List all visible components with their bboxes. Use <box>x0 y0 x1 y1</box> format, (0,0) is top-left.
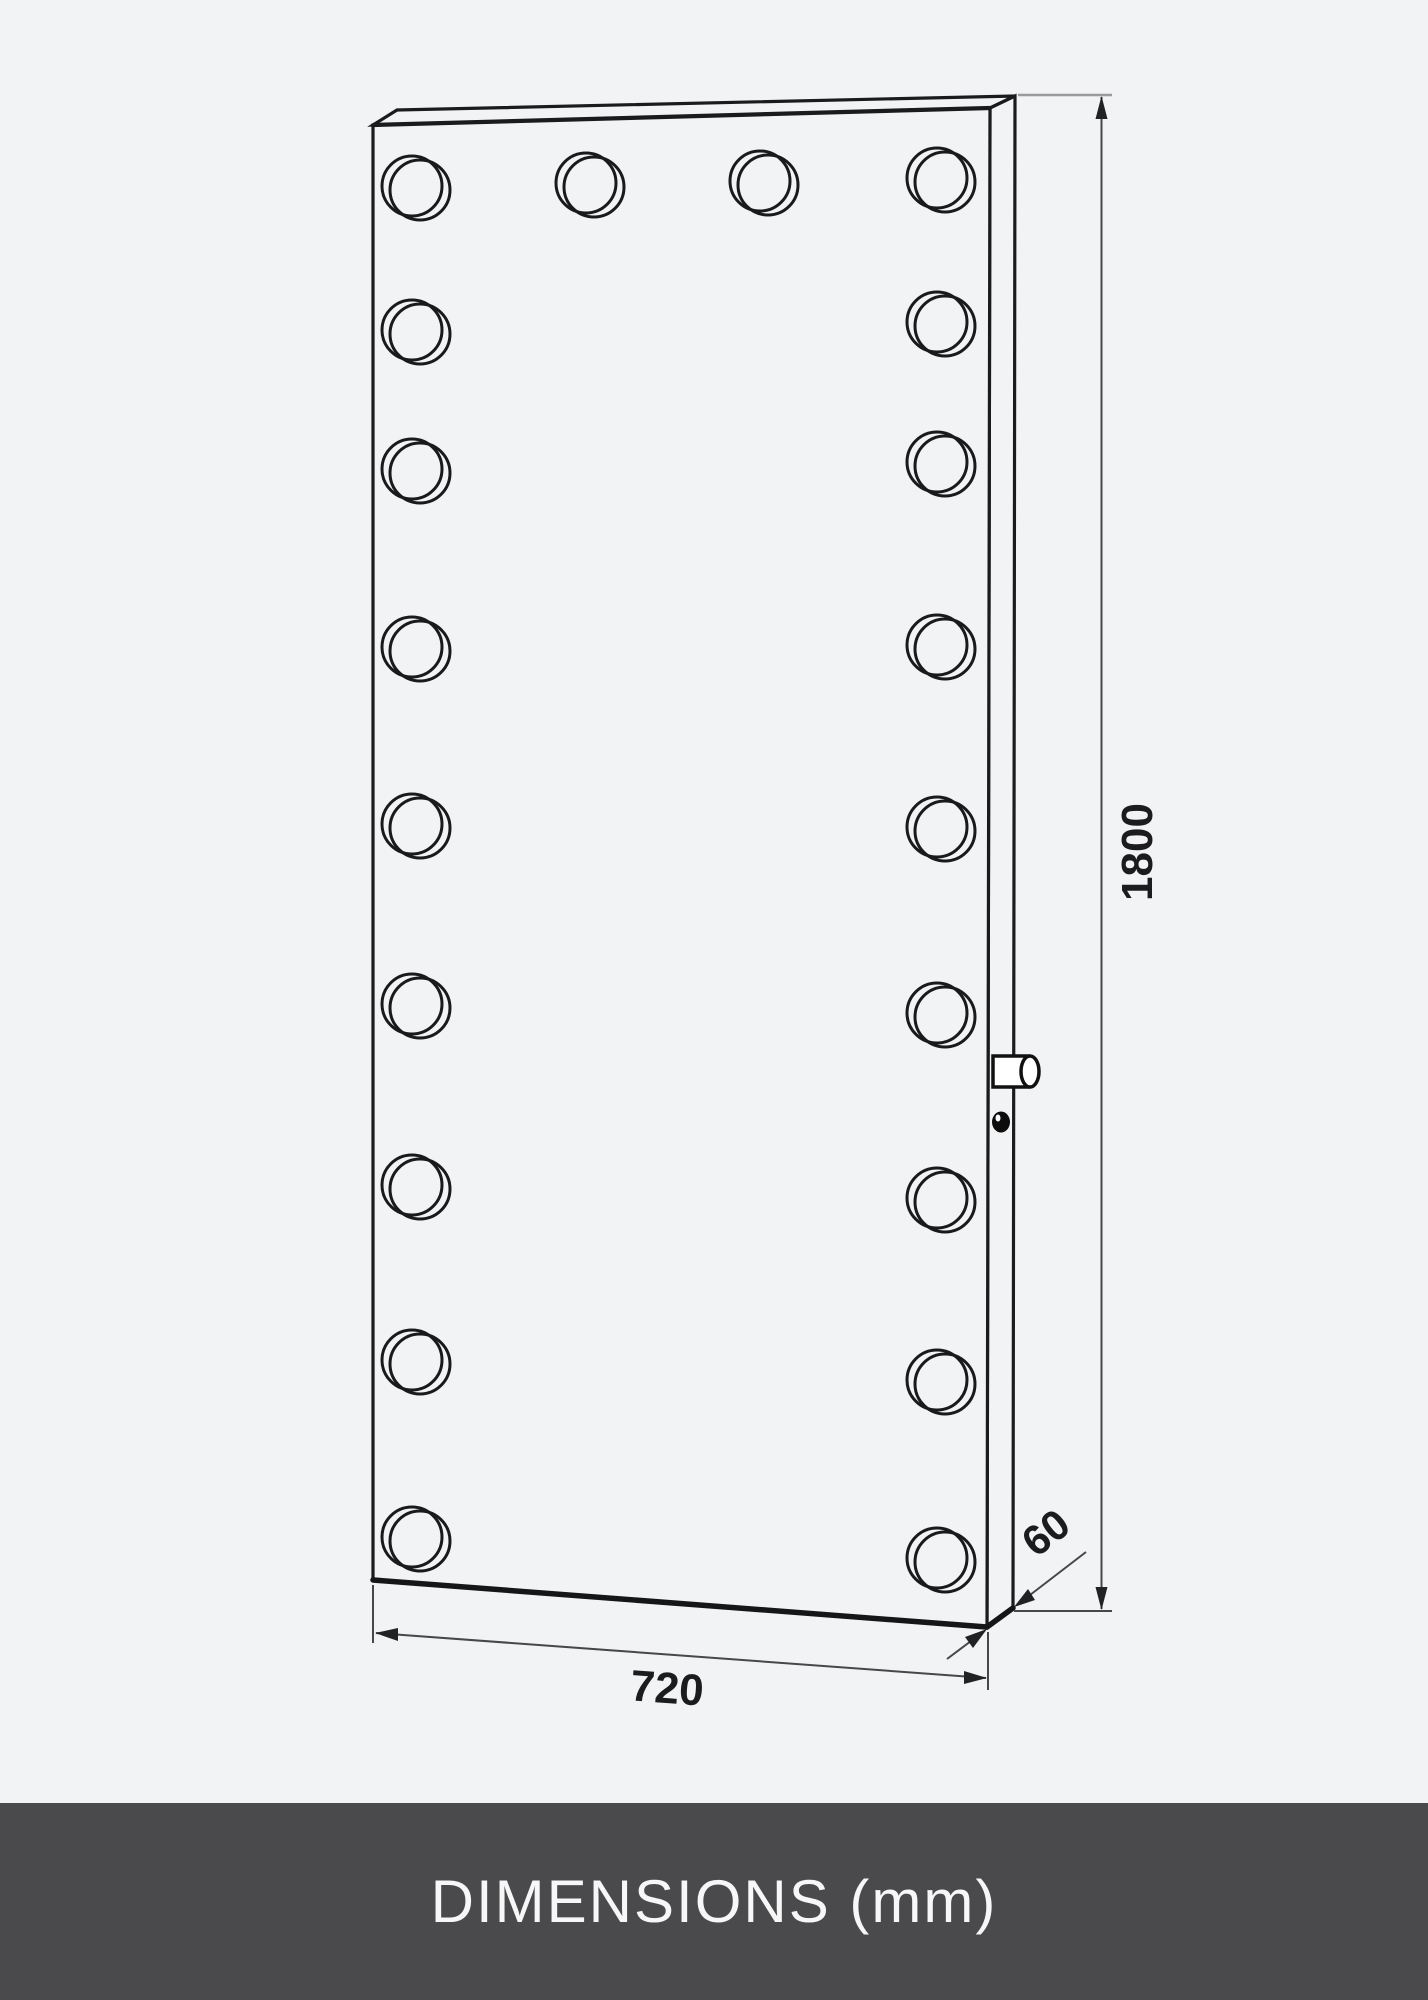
width-dimension-label: 720 <box>629 1661 706 1715</box>
depth-arrow-back <box>1014 1589 1035 1607</box>
mirror-side-face <box>987 96 1015 1627</box>
mirror-dimension-drawing: 1800 720 60 <box>0 0 1428 2000</box>
footer-bar: DIMENSIONS (mm) <box>0 1803 1428 2000</box>
height-arrow-up <box>1096 96 1108 119</box>
height-dimension: 1800 <box>1014 95 1162 1611</box>
depth-arrow-front <box>965 1629 987 1648</box>
diagram-page: 1800 720 60 DIMENSIONS (mm) <box>0 0 1428 2000</box>
power-indicator-dot <box>992 1112 1010 1133</box>
width-arrow-left <box>375 1628 398 1641</box>
height-arrow-down <box>1096 1587 1108 1610</box>
power-knob <box>993 1056 1039 1087</box>
height-dimension-label: 1800 <box>1113 803 1162 901</box>
mirror-front-face <box>373 108 990 1627</box>
depth-dimension-label: 60 <box>1013 1500 1079 1566</box>
footer-title: DIMENSIONS (mm) <box>431 1867 998 1936</box>
width-arrow-right <box>964 1671 987 1684</box>
